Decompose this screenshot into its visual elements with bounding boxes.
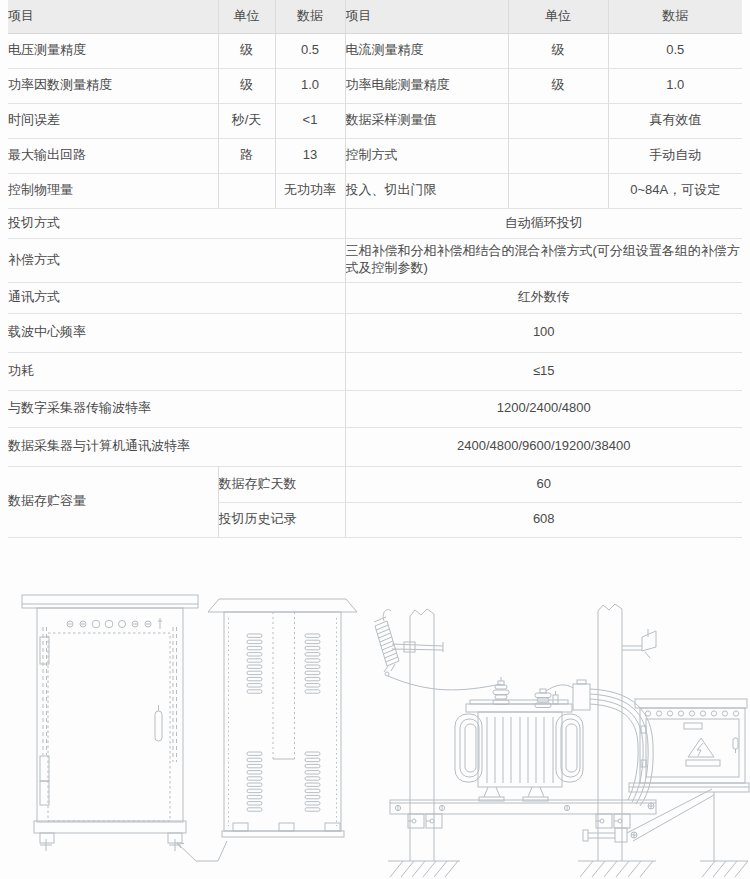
- table-header-row: 项目 单位 数据 项目 单位 数据: [8, 0, 742, 33]
- technical-drawings: [0, 570, 750, 879]
- table-row: 与数字采集器传输波特率 1200/2400/4800: [8, 390, 742, 427]
- item-cell: 最大输出回路: [8, 138, 218, 173]
- table-row: 补偿方式 三相补偿和分相补偿相结合的混合补偿方式(可分组设置各组的补偿方式及控制…: [8, 238, 742, 282]
- header-data-right: 数据: [608, 0, 742, 33]
- table-row: 数据采集器与计算机通讯波特率 2400/4800/9600/19200/3840…: [8, 427, 742, 466]
- spec-sheet-page: 项目 单位 数据 项目 单位 数据 电压测量精度 级 0.5 电流测量精度 级 …: [0, 0, 750, 879]
- item-cell: 控制物理量: [8, 173, 218, 208]
- sub-item-cell: 投切历史记录: [218, 502, 345, 537]
- unit-cell: 路: [218, 138, 275, 173]
- unit-cell: 级: [508, 33, 608, 68]
- item-cell: 电流测量精度: [345, 33, 508, 68]
- junction-box: [573, 684, 590, 710]
- value-cell: <1: [275, 103, 345, 138]
- table-row: 载波中心频率 100: [8, 313, 742, 352]
- vent-louvers: [247, 634, 320, 811]
- pole-installation-drawing: [374, 604, 749, 877]
- unit-cell: [508, 173, 608, 208]
- lv-bushing: [535, 689, 551, 708]
- table-row: 数据存贮容量 数据存贮天数 60: [8, 466, 742, 502]
- transformer: [455, 677, 590, 801]
- item-cell: 电压测量精度: [8, 33, 218, 68]
- nameplate: [684, 723, 702, 729]
- value-cell: 2400/4800/9600/19200/38400: [345, 427, 742, 466]
- value-cell: ≤15: [345, 352, 742, 390]
- unit-cell: [508, 103, 608, 138]
- box-handle: [733, 738, 738, 749]
- item-cell: 通讯方式: [8, 282, 345, 313]
- value-cell: 三相补偿和分相补偿相结合的混合补偿方式(可分组设置各组的补偿方式及控制参数): [345, 238, 742, 282]
- unit-cell: 级: [508, 68, 608, 103]
- unit-cell: 级: [218, 68, 275, 103]
- value-cell: 100: [345, 313, 742, 352]
- table-row: 功率因数测量精度 级 1.0 功率电能测量精度 级 1.0: [8, 68, 742, 103]
- table-row: 通讯方式 红外数传: [8, 282, 742, 313]
- spec-table: 项目 单位 数据 项目 单位 数据 电压测量精度 级 0.5 电流测量精度 级 …: [8, 0, 742, 538]
- unit-cell: [218, 173, 275, 208]
- item-cell: 功率因数测量精度: [8, 68, 218, 103]
- cabinet-side-drawing: [208, 599, 357, 837]
- door-handle: [155, 711, 162, 741]
- unit-cell: [508, 138, 608, 173]
- table-row: 电压测量精度 级 0.5 电流测量精度 级 0.5: [8, 33, 742, 68]
- value-cell: 1.0: [608, 68, 742, 103]
- technical-drawings-svg: [0, 570, 750, 879]
- value-cell: 60: [345, 466, 742, 502]
- value-cell: 0.5: [608, 33, 742, 68]
- value-cell: 1.0: [275, 68, 345, 103]
- value-cell: 手动自动: [608, 138, 742, 173]
- table-row: 控制物理量 无功功率 投入、切出门限 0~84A，可设定: [8, 173, 742, 208]
- unit-cell: 级: [218, 33, 275, 68]
- item-cell: 时间误差: [8, 103, 218, 138]
- item-cell: 数据采集器与计算机通讯波特率: [8, 427, 345, 466]
- unit-cell: 秒/天: [218, 103, 275, 138]
- item-cell: 数据采样测量值: [345, 103, 508, 138]
- item-cell: 投入、切出门限: [345, 173, 508, 208]
- warning-label: [686, 760, 720, 766]
- hv-bushing: [493, 677, 509, 705]
- header-unit-right: 单位: [508, 0, 608, 33]
- item-cell: 与数字采集器传输波特率: [8, 390, 345, 427]
- item-cell: 投切方式: [8, 208, 345, 238]
- pole-bracket-insulator: [622, 629, 656, 658]
- lightning-warning-triangle-icon: [688, 738, 714, 757]
- table-row: 功耗 ≤15: [8, 352, 742, 390]
- value-cell: 1200/2400/4800: [345, 390, 742, 427]
- table-row: 投切方式 自动循环投切: [8, 208, 742, 238]
- table-row: 最大输出回路 路 13 控制方式 手动自动: [8, 138, 742, 173]
- item-cell: 控制方式: [345, 138, 508, 173]
- value-cell: 13: [275, 138, 345, 173]
- value-cell: 608: [345, 502, 742, 537]
- ground-hatching: [388, 861, 748, 877]
- item-cell: 补偿方式: [8, 238, 345, 282]
- item-cell: 载波中心频率: [8, 313, 345, 352]
- dropout-fuse: [374, 610, 443, 676]
- header-item-right: 项目: [345, 0, 508, 33]
- compensation-box: [629, 699, 749, 792]
- value-cell: 无功功率: [275, 173, 345, 208]
- header-data-left: 数据: [275, 0, 345, 33]
- table-row: 时间误差 秒/天 <1 数据采样测量值 真有效值: [8, 103, 742, 138]
- item-cell: 功率电能测量精度: [345, 68, 508, 103]
- value-cell: 自动循环投切: [345, 208, 742, 238]
- item-cell: 功耗: [8, 352, 345, 390]
- item-cell: 数据存贮容量: [8, 466, 218, 537]
- value-cell: 真有效值: [608, 103, 742, 138]
- cabinet-front-drawing: [22, 595, 227, 861]
- value-cell: 红外数传: [345, 282, 742, 313]
- value-cell: 0~84A，可设定: [608, 173, 742, 208]
- crossbeam: [390, 800, 656, 828]
- jumper-wire: [388, 676, 501, 690]
- header-unit-left: 单位: [218, 0, 275, 33]
- value-cell: 0.5: [275, 33, 345, 68]
- header-item-left: 项目: [8, 0, 218, 33]
- sub-item-cell: 数据存贮天数: [218, 466, 345, 502]
